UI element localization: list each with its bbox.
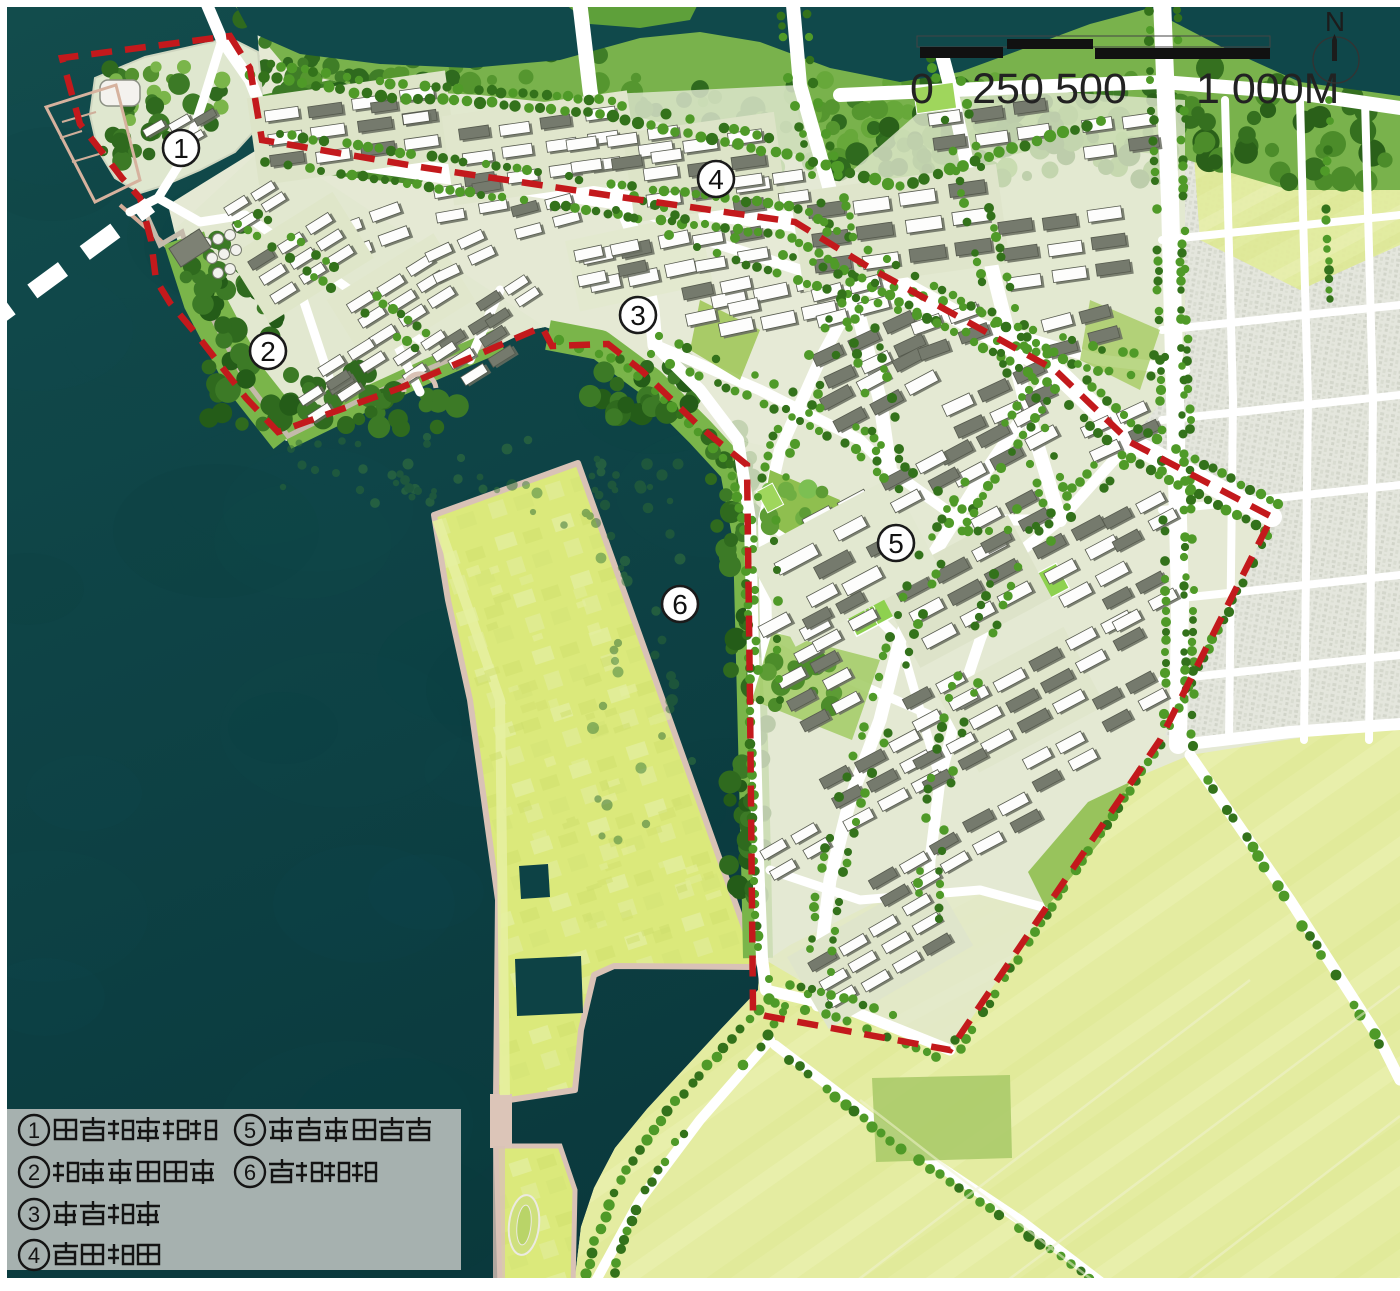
svg-text:5: 5	[888, 528, 904, 559]
svg-text:3: 3	[630, 300, 646, 331]
svg-text:1: 1	[28, 1118, 40, 1143]
svg-text:6: 6	[244, 1160, 256, 1185]
svg-text:2: 2	[260, 336, 276, 367]
svg-text:N: N	[1325, 6, 1345, 37]
svg-text:1: 1	[173, 133, 189, 164]
svg-text:1 000M: 1 000M	[1196, 65, 1339, 113]
svg-text:3: 3	[28, 1202, 40, 1227]
svg-text:2: 2	[28, 1160, 40, 1185]
svg-text:5: 5	[244, 1118, 256, 1143]
svg-text:4: 4	[708, 164, 724, 195]
svg-text:4: 4	[28, 1243, 40, 1268]
svg-text:250: 250	[972, 65, 1044, 113]
svg-text:6: 6	[672, 589, 688, 620]
svg-text:500: 500	[1055, 65, 1127, 113]
svg-text:0: 0	[910, 65, 934, 113]
